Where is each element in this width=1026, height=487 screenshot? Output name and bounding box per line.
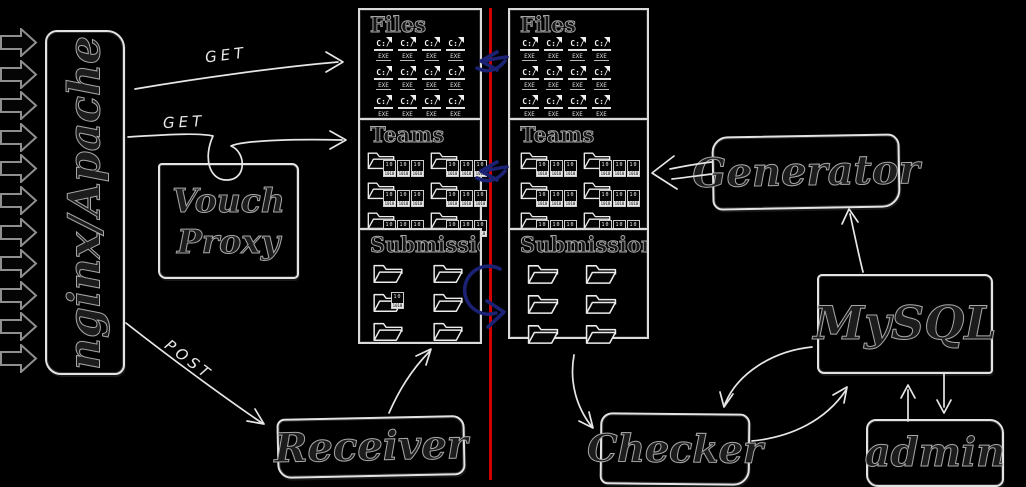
- incoming-request-arrow-icon: [0, 154, 38, 183]
- receiver-to-submissions-arrow: [389, 349, 431, 413]
- exe-file-grid: C:/ EXE C:/ EXE C:/ EXE C:/ EXE C:/ EXE …: [510, 39, 647, 122]
- receiver-label: Receiver: [274, 420, 468, 474]
- folder-icon: [372, 319, 404, 343]
- binary-file-icon: 101010: [460, 190, 473, 207]
- exe-file-icon: C:/ EXE: [446, 39, 465, 64]
- team-folder-cluster: 101010 101010 101010: [582, 149, 638, 179]
- binary-file-icon: 101010: [383, 190, 396, 207]
- team-folder-grid: 101010 101010 101010 101010 101010 10101…: [360, 149, 480, 239]
- mysql-to-checker-arrow: [720, 347, 812, 407]
- incoming-request-arrow-icon: [0, 123, 38, 152]
- folder-icon: [584, 291, 618, 316]
- binary-file-icon: 101010: [550, 160, 563, 177]
- binary-file-icon: 101010: [446, 160, 459, 177]
- binary-file-icon: 101010: [474, 190, 487, 207]
- incoming-request-arrow-icon: [0, 281, 38, 310]
- generator-label: Generator: [692, 145, 920, 199]
- submissions-box-left-title: Submissio: [370, 232, 480, 257]
- teams-box-right: Teams 101010 101010 101010: [508, 118, 649, 230]
- exe-file-icon: C:/ EXE: [568, 39, 587, 64]
- files-box-right-title: Files: [520, 12, 647, 37]
- team-folder-cluster: 101010 101010 101010: [429, 179, 485, 209]
- checker-node: Checker: [600, 412, 751, 486]
- teams-box-left: Teams 101010 101010 101010: [358, 118, 482, 230]
- folder-icon: [526, 291, 560, 316]
- team-folder-cluster: 101010 101010 101010: [519, 149, 575, 179]
- incoming-request-arrow-icon: [0, 91, 38, 120]
- binary-file-icon: 101010: [627, 160, 640, 177]
- folder-icon: [432, 319, 464, 343]
- exe-file-icon: C:/ EXE: [398, 39, 417, 64]
- post-label: POST: [161, 336, 216, 384]
- incoming-requests: [0, 28, 38, 373]
- exe-file-icon: C:/ EXE: [422, 68, 441, 93]
- incoming-request-arrow-icon: [0, 60, 38, 89]
- exe-file-icon: C:/ EXE: [422, 39, 441, 64]
- team-folder-cluster: 101010 101010 101010: [582, 179, 638, 209]
- admin-node: admin: [866, 419, 1004, 487]
- exe-file-icon: C:/ EXE: [374, 39, 393, 64]
- submissions-box-right-title: Submissions: [520, 232, 647, 257]
- incoming-request-arrow-icon: [0, 218, 38, 247]
- mysql-to-generator-arrow: [842, 209, 863, 272]
- teams-box-right-title: Teams: [520, 122, 647, 147]
- binary-file-icon: 101010: [550, 190, 563, 207]
- mysql-node: MySQL: [817, 274, 993, 374]
- binary-file-icon: 101010: [397, 160, 410, 177]
- vouch-proxy-label: Vouch Proxy: [160, 180, 297, 263]
- folder-icon: [584, 321, 618, 346]
- nginx-apache-node: nginx/Apache: [45, 30, 125, 375]
- submissions-box-right: Submissions: [508, 228, 649, 339]
- binary-file-icon: 101010: [613, 160, 626, 177]
- binary-file-icon: 101010: [391, 292, 404, 309]
- folder-icon: [372, 261, 404, 285]
- binary-file-icon: 101010: [383, 160, 396, 177]
- architecture-diagram: nginx/Apache Vouch Proxy Generator MySQL…: [0, 0, 1026, 487]
- mysql-to-admin-arrow: [937, 374, 951, 413]
- folder-icon: [526, 321, 560, 346]
- submissions-to-checker-arrow: [573, 355, 593, 428]
- storage-column-left: Files C:/ EXE C:/ EXE C:/ EXE C:/ EXE C:…: [358, 8, 482, 344]
- nginx-apache-label: nginx/Apache: [58, 36, 113, 370]
- get-label-middle: GET: [163, 112, 206, 132]
- folder-icon: [584, 261, 618, 286]
- incoming-request-arrow-icon: [0, 312, 38, 341]
- exe-file-icon: C:/ EXE: [398, 68, 417, 93]
- vouch-proxy-node: Vouch Proxy: [158, 163, 299, 279]
- admin-label: admin: [865, 428, 1006, 478]
- binary-file-icon: 101010: [397, 190, 410, 207]
- folder-icon: [432, 290, 464, 314]
- red-divider-line: [489, 8, 492, 480]
- receiver-node: Receiver: [276, 415, 465, 479]
- files-box-left-title: Files: [370, 12, 480, 37]
- binary-file-icon: 101010: [460, 160, 473, 177]
- exe-file-grid: C:/ EXE C:/ EXE C:/ EXE C:/ EXE C:/ EXE …: [360, 39, 480, 122]
- binary-file-icon: 101010: [564, 190, 577, 207]
- checker-to-mysql-arrow: [752, 387, 847, 441]
- team-folder-cluster: 101010 101010 101010: [519, 179, 575, 209]
- checker-label: Checker: [587, 424, 763, 473]
- exe-file-icon: C:/ EXE: [520, 39, 539, 64]
- binary-file-icon: 101010: [599, 160, 612, 177]
- incoming-request-arrow-icon: [0, 344, 38, 373]
- admin-to-mysql-arrow: [901, 385, 915, 421]
- team-folder-cluster: 101010 101010 101010: [429, 149, 485, 179]
- binary-file-icon: 101010: [564, 160, 577, 177]
- exe-file-icon: C:/ EXE: [568, 68, 587, 93]
- exe-file-icon: C:/ EXE: [446, 68, 465, 93]
- submission-folder-grid: [360, 259, 480, 343]
- team-folder-cluster: 101010 101010 101010: [366, 149, 422, 179]
- binary-file-icon: 101010: [536, 190, 549, 207]
- binary-file-icon: 101010: [599, 190, 612, 207]
- binary-file-icon: 101010: [411, 190, 424, 207]
- binary-file-icon: 101010: [613, 190, 626, 207]
- folder-icon: [432, 261, 464, 285]
- exe-file-icon: C:/ EXE: [374, 68, 393, 93]
- team-folder-cluster: 101010 101010 101010: [366, 179, 422, 209]
- mysql-label: MySQL: [813, 295, 996, 353]
- get-label-top: GET: [204, 43, 248, 66]
- folder-icon: [526, 261, 560, 286]
- submissions-box-left: Submissio: [358, 228, 482, 344]
- exe-file-icon: C:/ EXE: [544, 68, 563, 93]
- binary-file-icon: 101010: [536, 160, 549, 177]
- teams-box-left-title: Teams: [370, 122, 480, 147]
- files-box-left: Files C:/ EXE C:/ EXE C:/ EXE C:/ EXE C:…: [358, 8, 482, 120]
- binary-file-icon: 101010: [474, 160, 487, 177]
- exe-file-icon: C:/ EXE: [544, 39, 563, 64]
- binary-file-icon: 101010: [411, 160, 424, 177]
- generator-node: Generator: [711, 133, 900, 210]
- team-folder-grid: 101010 101010 101010 101010 101010 10101…: [510, 149, 647, 239]
- incoming-request-arrow-icon: [0, 186, 38, 215]
- exe-file-icon: C:/ EXE: [592, 39, 611, 64]
- incoming-request-arrow-icon: [0, 249, 38, 278]
- files-box-right: Files C:/ EXE C:/ EXE C:/ EXE C:/ EXE C:…: [508, 8, 649, 120]
- submission-folder-grid: [510, 259, 647, 346]
- exe-file-icon: C:/ EXE: [520, 68, 539, 93]
- binary-file-icon: 101010: [446, 190, 459, 207]
- storage-column-right: Files C:/ EXE C:/ EXE C:/ EXE C:/ EXE C:…: [508, 8, 649, 339]
- exe-file-icon: C:/ EXE: [592, 68, 611, 93]
- incoming-request-arrow-icon: [0, 28, 38, 57]
- binary-file-icon: 101010: [627, 190, 640, 207]
